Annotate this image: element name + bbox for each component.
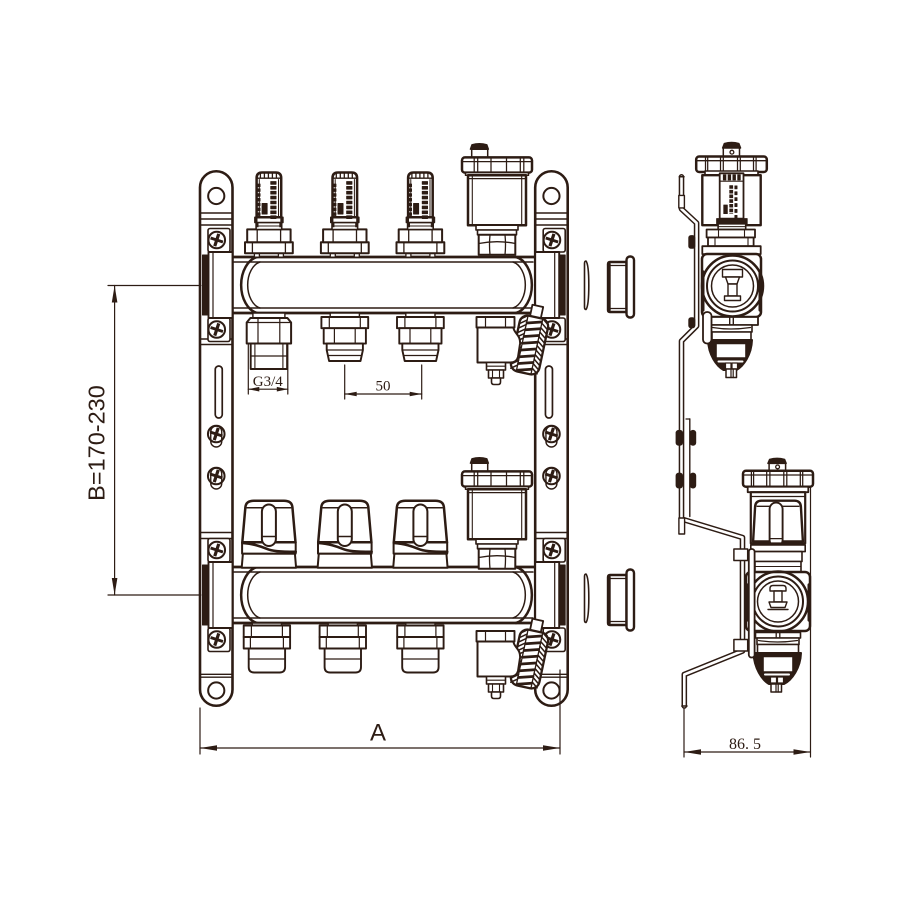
svg-text:B=170-230: B=170-230 [84,385,110,501]
svg-text:G3/4: G3/4 [253,374,284,390]
svg-text:50: 50 [376,378,391,394]
svg-text:A: A [370,720,386,747]
svg-text:86. 5: 86. 5 [729,736,761,753]
